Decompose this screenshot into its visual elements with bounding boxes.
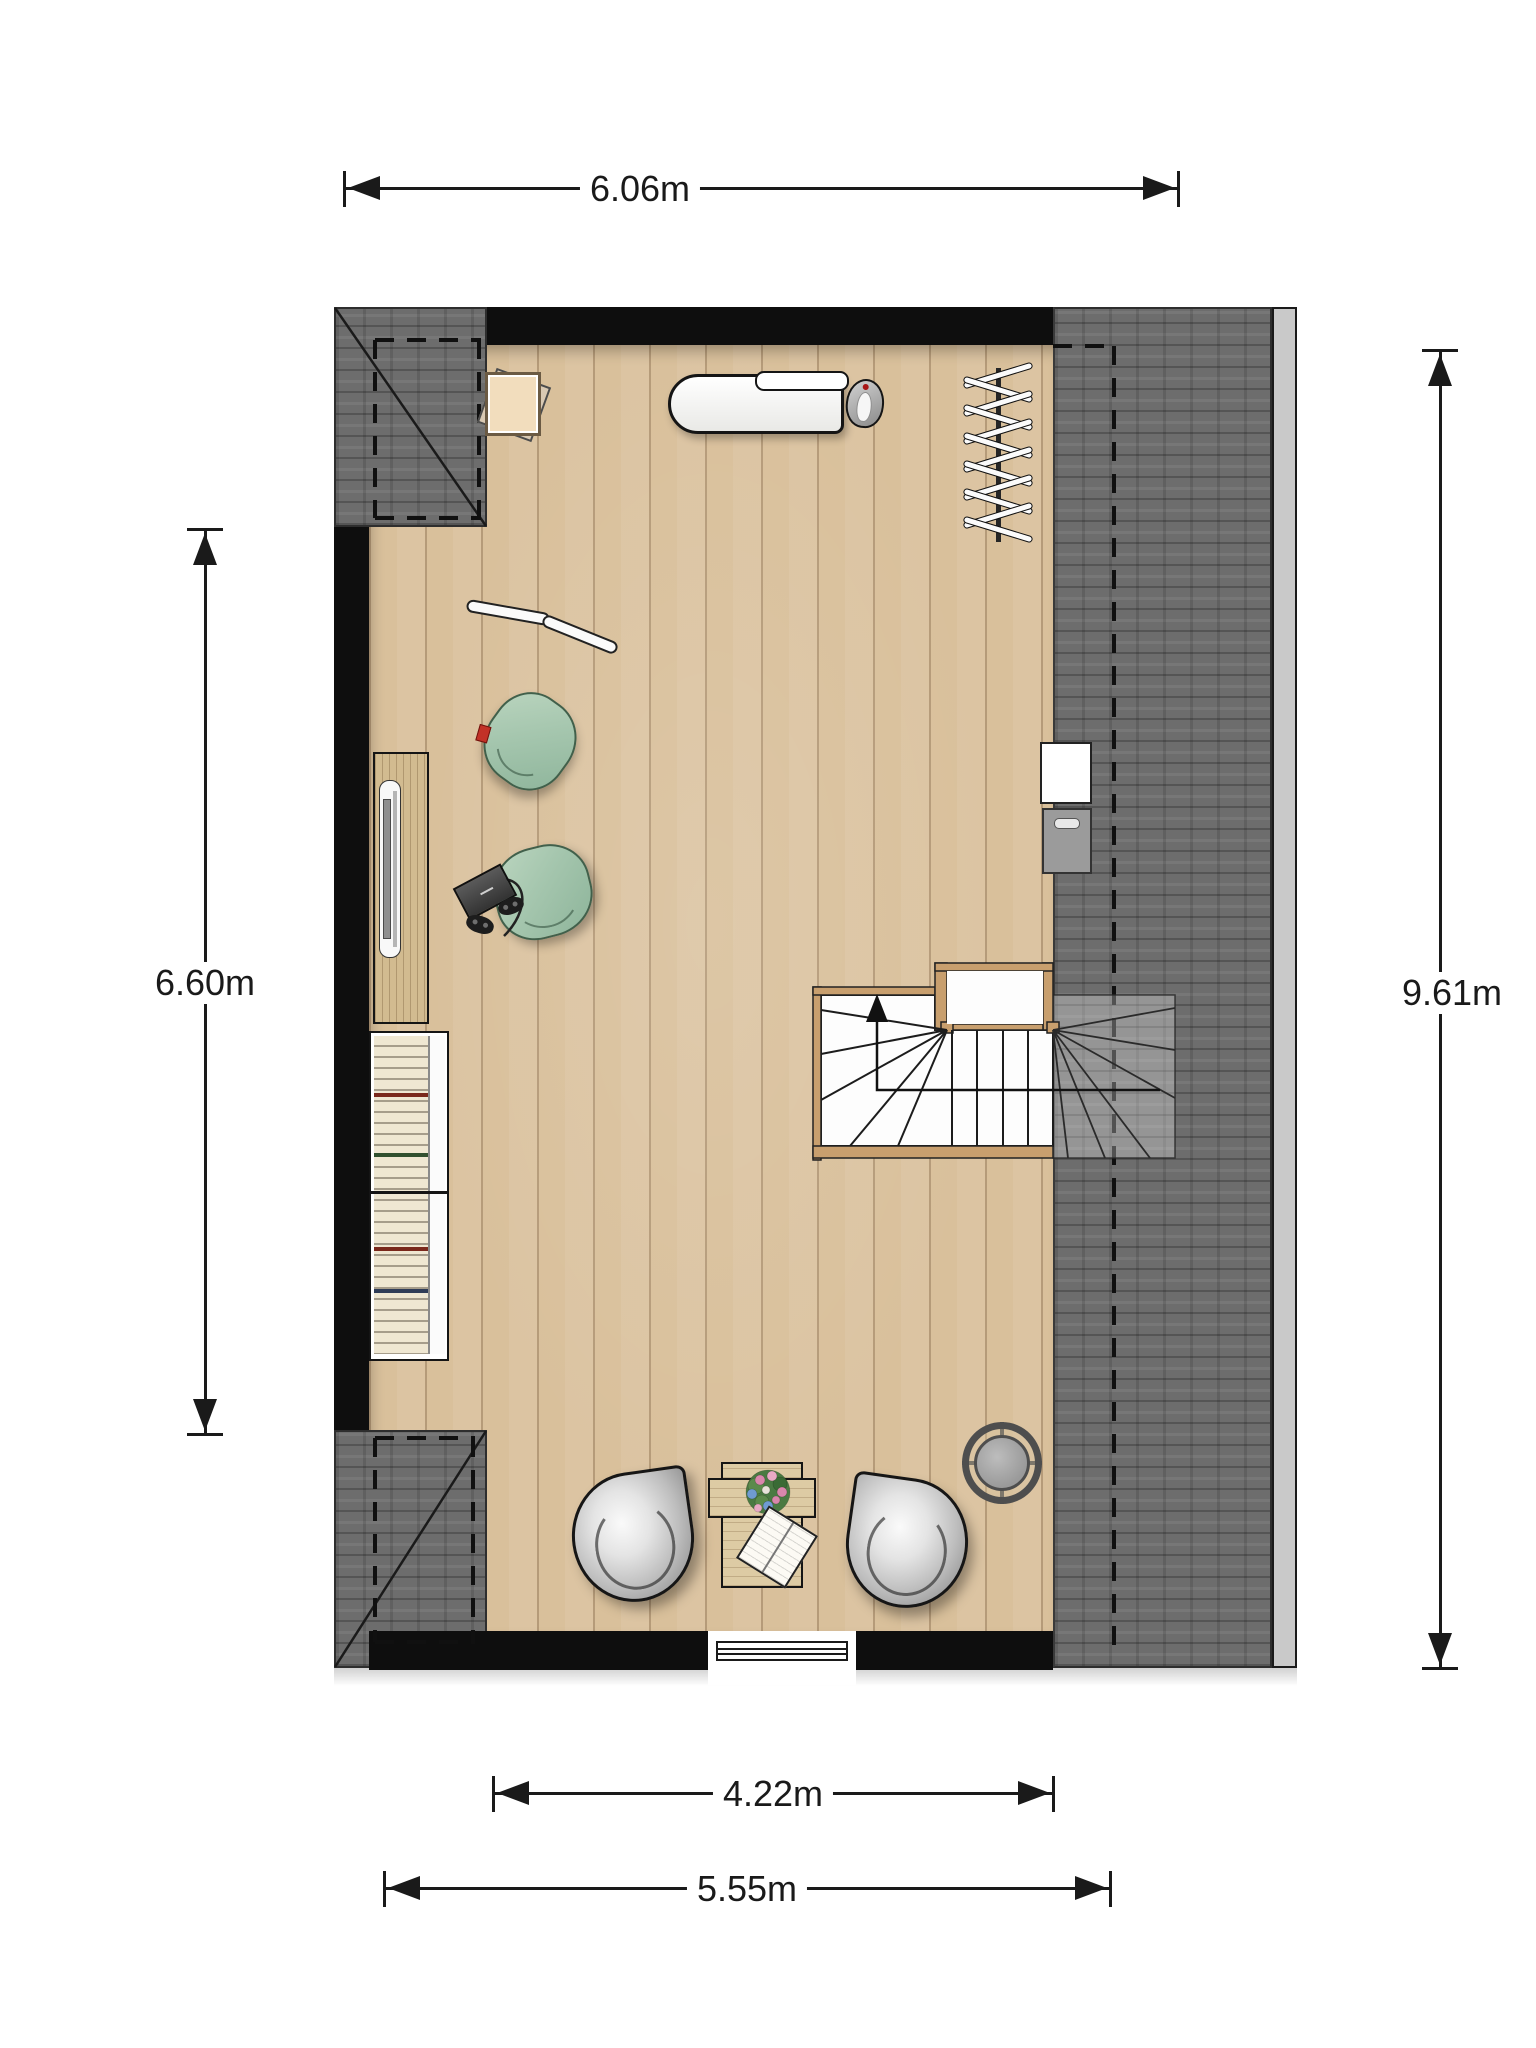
bookshelf <box>369 1031 449 1361</box>
dim-tick <box>343 171 346 207</box>
headroom-dashed-line <box>375 338 481 342</box>
dim-tick <box>1177 171 1180 207</box>
roof-gutter <box>1272 307 1297 1668</box>
headroom-dashed-line <box>373 1438 377 1642</box>
dim-label-top: 6.06m <box>580 168 700 210</box>
book-accent <box>374 1247 428 1251</box>
dim-tick <box>1052 1776 1055 1812</box>
dim-arrow-right <box>1075 1876 1107 1900</box>
window-frame-line <box>718 1653 846 1655</box>
controller-stick <box>472 919 478 925</box>
side-table <box>481 366 549 446</box>
headroom-dashed-line <box>375 516 481 520</box>
dim-arrow-down <box>1428 1633 1452 1665</box>
dim-tick <box>1109 1871 1112 1907</box>
iron-indicator-light <box>862 384 869 391</box>
ironing-board-sleeve-arm <box>755 371 849 391</box>
dim-arrow-right <box>1018 1781 1050 1805</box>
chimney-flue <box>1042 808 1092 874</box>
dim-line-top <box>345 187 1178 190</box>
dim-tick <box>1422 349 1458 352</box>
wall-top <box>487 307 1053 345</box>
headroom-dashed-line <box>471 1438 475 1642</box>
dim-label-bottom-inner: 4.22m <box>713 1773 833 1815</box>
headroom-dashed-line <box>373 340 377 518</box>
bookshelf-divider <box>371 1191 447 1194</box>
dim-arrow-left <box>388 1876 420 1900</box>
fan-inner-disc <box>974 1435 1030 1491</box>
headroom-dashed-line <box>375 1436 475 1440</box>
dim-arrow-left <box>497 1781 529 1805</box>
book-spine <box>762 1522 794 1572</box>
dim-arrow-up <box>1428 354 1452 386</box>
dim-label-left: 6.60m <box>145 962 265 1004</box>
dim-arrow-right <box>1143 176 1175 200</box>
dim-tick <box>1422 1667 1458 1670</box>
controller-stick <box>482 922 488 928</box>
dim-tick <box>492 1776 495 1812</box>
chair-seat-line <box>861 1503 953 1601</box>
chimney-cabinet <box>1040 742 1092 804</box>
tv-on-sideboard <box>379 780 401 958</box>
window-frame <box>716 1641 848 1661</box>
tv-panel <box>393 791 397 947</box>
window-frame-line <box>718 1648 846 1650</box>
controller-stick <box>502 904 508 910</box>
headroom-dashed-line <box>375 1640 475 1644</box>
staircase <box>810 958 1182 1168</box>
dim-label-bottom-outer: 5.55m <box>687 1868 807 1910</box>
floor-plan: 6.06m 6.60m 9.61m 4.22m 5.55m <box>0 0 1536 2048</box>
dim-label-right: 9.61m <box>1392 972 1512 1014</box>
bookshelf-books <box>374 1036 428 1354</box>
dim-arrow-up <box>193 533 217 565</box>
dim-tick <box>187 1433 223 1436</box>
sideboard <box>373 752 429 1024</box>
book-accent <box>374 1093 428 1097</box>
bookshelf-edge <box>428 1036 445 1354</box>
wall-left <box>334 527 369 1430</box>
drying-rack <box>961 368 1037 544</box>
controller-stick <box>512 901 518 907</box>
console-slot <box>480 887 493 895</box>
chair-seat-line <box>589 1497 681 1595</box>
tv-panel <box>383 799 391 939</box>
book-accent <box>374 1153 428 1157</box>
side-table-upper-top <box>485 372 541 436</box>
dim-tick <box>187 528 223 531</box>
dim-arrow-left <box>348 176 380 200</box>
headroom-dashed-line <box>1053 344 1115 348</box>
iron-handle <box>855 391 873 422</box>
book-accent <box>374 1289 428 1293</box>
dim-tick <box>383 1871 386 1907</box>
flue-slot <box>1054 818 1080 829</box>
round-fan <box>962 1422 1042 1504</box>
stair-landing <box>947 971 1043 1024</box>
dim-arrow-down <box>193 1399 217 1431</box>
